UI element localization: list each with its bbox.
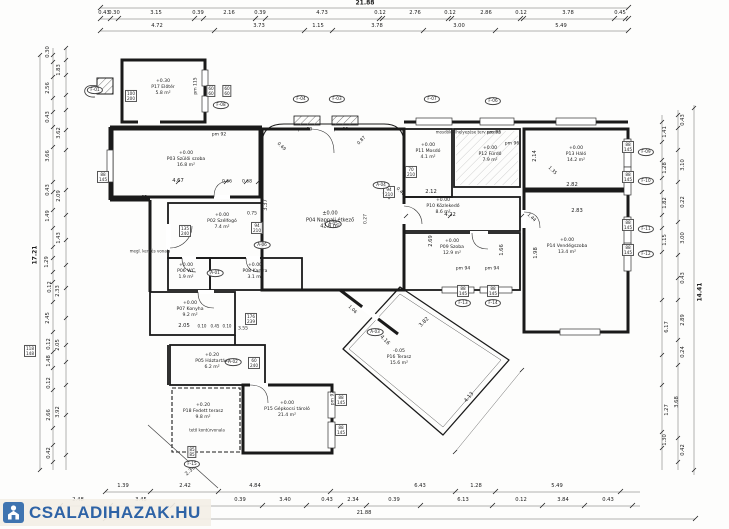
dim-label: 2.83 (571, 209, 583, 215)
dim-label: 0.30 (46, 46, 52, 58)
dim-label: 2.89 (681, 314, 687, 326)
door-size-tag: 94 210 (251, 222, 263, 234)
window-size-tag: 60 60 (222, 85, 231, 97)
dim-label: 3.78 (562, 11, 574, 17)
room-label: +0.00 P03 Szülői szoba 16.8 m² (167, 151, 205, 169)
dim-label: 1.30 (663, 434, 669, 446)
door-size-tag: 60 240 (248, 357, 260, 369)
dim-label: 1.06 (347, 305, 358, 316)
dim-label: 5.49 (551, 484, 563, 490)
window-id-tag: F-06 (485, 97, 501, 105)
door-id-tag: A-06 (254, 241, 271, 249)
window-size-tag: 118 148 (24, 345, 36, 357)
dim-label: 1.82 (663, 197, 669, 209)
dim-label: 0.87 (357, 136, 368, 147)
dim-label: 3.68 (675, 396, 681, 408)
window-size-tag: 176 239 (245, 313, 257, 325)
dim-label: 3.00 (681, 232, 687, 244)
dim-label: 2.05 (56, 339, 62, 351)
dim-label: 0.39 (254, 11, 266, 17)
dim-label: 3.00 (453, 24, 465, 30)
dim-label: 2.45 (46, 312, 52, 324)
dim-label: 2.76 (409, 11, 421, 17)
parapet-mark: pm 115 (193, 77, 198, 94)
window-size-tag: 88 145 (622, 171, 634, 183)
room-label: +0.20 P18 Fedett terasz 9.8 m² (183, 403, 223, 421)
dim-label: 3.84 (557, 498, 569, 504)
dim-total-bottom: 21.88 (357, 511, 372, 517)
window-size-tag: 60 60 (206, 85, 215, 97)
dim-label: 1.27 (665, 404, 671, 416)
watermark-text: CSALADIHAZAK.HU (29, 503, 201, 523)
dim-label: 0.46 (395, 187, 406, 198)
dim-label: 3.15 (150, 11, 162, 17)
window-size-tag: 88 145 (622, 244, 634, 256)
dim-label: 1.28 (470, 484, 482, 490)
dim-total-top: 21.88 (356, 1, 375, 8)
room-label: +0.00 P08 Kamra 3.1 m² (242, 263, 267, 281)
dim-label: 3.10 (681, 159, 687, 171)
dim-label: 3.92 (56, 406, 62, 418)
watermark-logo[interactable]: CSALADIHAZAK.HU (0, 499, 211, 526)
room-label: +0.00 P12 Fürdő 7.9 m² (479, 146, 502, 164)
dim-label: 1.15 (312, 24, 324, 30)
dim-label: 6.17 (665, 321, 671, 333)
window-id-tag: F-09 (638, 148, 654, 156)
dim-label: 0.22 (681, 196, 687, 208)
parapet-mark: pm 94 (485, 266, 499, 271)
dim-label: 6.13 (457, 498, 469, 504)
window-id-tag: F-03 (329, 95, 345, 103)
dim-label: 1.41 (663, 126, 669, 138)
dim-label: 1.44 (526, 213, 537, 224)
room-label: +0.00 P06 WC 1.9 m² (177, 263, 195, 281)
dim-label: 0.39 (388, 498, 400, 504)
dim-label: 0.66 (222, 179, 232, 184)
dim-label: 4.73 (316, 11, 328, 17)
dim-total-right: 14.41 (698, 283, 705, 302)
room-label: +0.00 P09 Szoba 12.9 m² (440, 239, 464, 257)
dim-label: 2.56 (46, 82, 52, 94)
dim-label: 0.45 (614, 11, 626, 17)
dim-label: 1.15 (663, 234, 669, 246)
dim-label: 2.42 (179, 484, 191, 490)
parapet-mark: pm 92 (212, 132, 226, 137)
window-id-tag: F-10 (638, 177, 654, 185)
dim-label: 3.62 (57, 127, 63, 139)
dim-label: 6.43 (414, 484, 426, 490)
dim-total-left: 17.21 (33, 246, 40, 265)
dim-label: 2.09 (57, 190, 63, 202)
dim-label: 3.82 (419, 317, 431, 329)
dim-label: 3.40 (279, 498, 291, 504)
parapet-mark: pm 90 (334, 127, 348, 132)
parapet-mark: pm 92 (133, 195, 147, 200)
dim-label: 0.30 (108, 11, 120, 17)
dim-label: 0.10 (223, 325, 232, 330)
dim-label: 1.98 (534, 247, 540, 259)
dim-label: 1.83 (57, 64, 63, 76)
dim-label: 0.68 (242, 179, 252, 184)
dim-label: 2.16 (223, 11, 235, 17)
dim-label: 2.82 (566, 183, 578, 189)
parapet-mark: pm 96 (505, 141, 519, 146)
room-label: +0.00 P07 Konyha 9.2 m² (176, 301, 203, 319)
dim-label: 3.37 (264, 199, 270, 211)
dim-label: 1.39 (117, 484, 129, 490)
window-size-tag: 88 145 (97, 171, 109, 183)
dim-label: 5.49 (555, 24, 567, 30)
window-size-tag: 88 145 (622, 219, 634, 231)
room-label: +0.00 P14 Vendégszoba 13.4 m² (547, 238, 588, 256)
dim-label: 0.45 (211, 325, 220, 330)
window-size-tag: 88 145 (335, 424, 347, 436)
dim-label: 2.69 (429, 235, 435, 247)
window-id-tag: F-07 (424, 95, 440, 103)
room-label: ±0.00 P04 Nappali étkező 42.6 m² (306, 210, 354, 230)
dim-label: 0.43 (321, 498, 333, 504)
dim-label: 2.12 (425, 190, 437, 196)
dim-label: 0.10 (198, 325, 207, 330)
dim-label: 1.66 (500, 244, 506, 256)
window-size-tag: 88 145 (622, 141, 634, 153)
dim-label: 0.43 (46, 184, 52, 196)
door-size-tag: 135 240 (179, 225, 191, 237)
parapet-mark: pm 90 (298, 127, 312, 132)
window-id-tag: F-13 (455, 299, 471, 307)
dim-label: 2.34 (347, 498, 359, 504)
dim-label: 0.24 (681, 346, 687, 358)
dim-label: 3.78 (371, 24, 383, 30)
dim-label: 4.72 (151, 24, 163, 30)
dim-label: 1.43 (57, 232, 63, 244)
door-size-tag: 70 210 (405, 166, 417, 178)
door-id-tag: A-01 (207, 269, 224, 277)
note: megl. kerítés vonala (130, 250, 171, 255)
dim-label: 0.42 (681, 444, 687, 456)
room-label: +0.00 P13 Háló 14.2 m² (566, 146, 586, 164)
room-label: -0.05 P16 Terasz 15.6 m² (387, 349, 411, 367)
dim-label: 3.66 (46, 150, 52, 162)
dim-label: 2.14 (533, 150, 539, 162)
dim-label: 0.69 (276, 142, 287, 153)
dim-label: 1.35 (547, 166, 558, 177)
window-id-tag: F-11 (638, 225, 654, 233)
window-size-tag: 88 145 (487, 285, 499, 297)
dim-label: 0.75 (247, 211, 257, 216)
dim-label: 0.43 (681, 114, 687, 126)
note: tető kontúrvonala (189, 429, 225, 434)
window-id-tag: F-04 (293, 95, 309, 103)
dim-label: 3.73 (253, 24, 265, 30)
annotation-layer: 21.880.430.303.150.392.160.394.730.122.7… (0, 0, 729, 529)
window-id-tag: F-08 (213, 101, 229, 109)
room-label: +0.20 P05 Háztartási 6.2 m² (195, 353, 229, 371)
dim-label: 0.12 (374, 11, 386, 17)
dim-label: 2.66 (47, 409, 53, 421)
dim-label: 3.55 (238, 326, 248, 331)
dim-label: 1.28 (663, 162, 669, 174)
room-label: +0.00 P02 Szélfogó 7.4 m² (207, 213, 237, 231)
dim-label: 4.13 (464, 392, 476, 405)
dim-label: 0.12 (47, 377, 53, 389)
window-size-tag: 88 145 (457, 285, 469, 297)
dim-label: 4.67 (172, 179, 184, 185)
dim-label: 0.12 (47, 338, 53, 350)
dim-label: 0.39 (234, 498, 246, 504)
floor-plan-page: 21.880.430.303.150.392.160.394.730.122.7… (0, 0, 729, 529)
room-label: +0.00 P10 Közlekedő 8.6 m² (426, 198, 459, 216)
dim-label: 0.43 (681, 272, 687, 284)
dim-label: 0.42 (47, 447, 53, 459)
window-id-tag: F-12 (638, 250, 654, 258)
dim-label: 2.86 (480, 11, 492, 17)
room-label: +0.00 P11 Mosdó 4.1 m² (416, 143, 441, 161)
dim-label: 0.43 (602, 498, 614, 504)
room-label: +0.30 P17 Előtér 5.8 m² (151, 79, 175, 97)
dim-label: 1.48 (47, 355, 53, 367)
dim-label: 0.39 (192, 11, 204, 17)
window-id-tag: F-14 (485, 299, 501, 307)
window-id-tag: F-01 (87, 86, 103, 94)
door-id-tag: A-03 (367, 328, 384, 336)
room-label: +0.00 P15 Gépkocsi tároló 21.4 m² (264, 401, 310, 419)
dim-label: 0.12 (515, 11, 527, 17)
dim-label: 1.49 (46, 210, 52, 222)
dim-label: 2.33 (56, 285, 62, 297)
door-size-tag: 100 200 (125, 90, 137, 102)
dim-label: 2.05 (178, 324, 190, 330)
parapet-mark: pm 94 (456, 266, 470, 271)
window-size-tag: 88 145 (335, 394, 347, 406)
window-size-tag: 85 85 (187, 446, 196, 458)
note: mosdók elhelyezése terv szerint (436, 131, 501, 136)
dim-label: 4.16 (378, 335, 390, 347)
door-id-tag: A-04 (373, 181, 390, 189)
window-id-tag: F-15 (184, 460, 200, 468)
house-logo-icon (3, 502, 24, 523)
dim-label: 1.29 (45, 256, 51, 268)
dim-label: 0.27 (363, 214, 368, 224)
dim-label: 0.43 (46, 111, 52, 123)
dim-label: 4.84 (249, 484, 261, 490)
dim-label: 0.12 (515, 498, 527, 504)
dim-label: 0.12 (444, 11, 456, 17)
dim-label: 0.12 (48, 281, 54, 293)
